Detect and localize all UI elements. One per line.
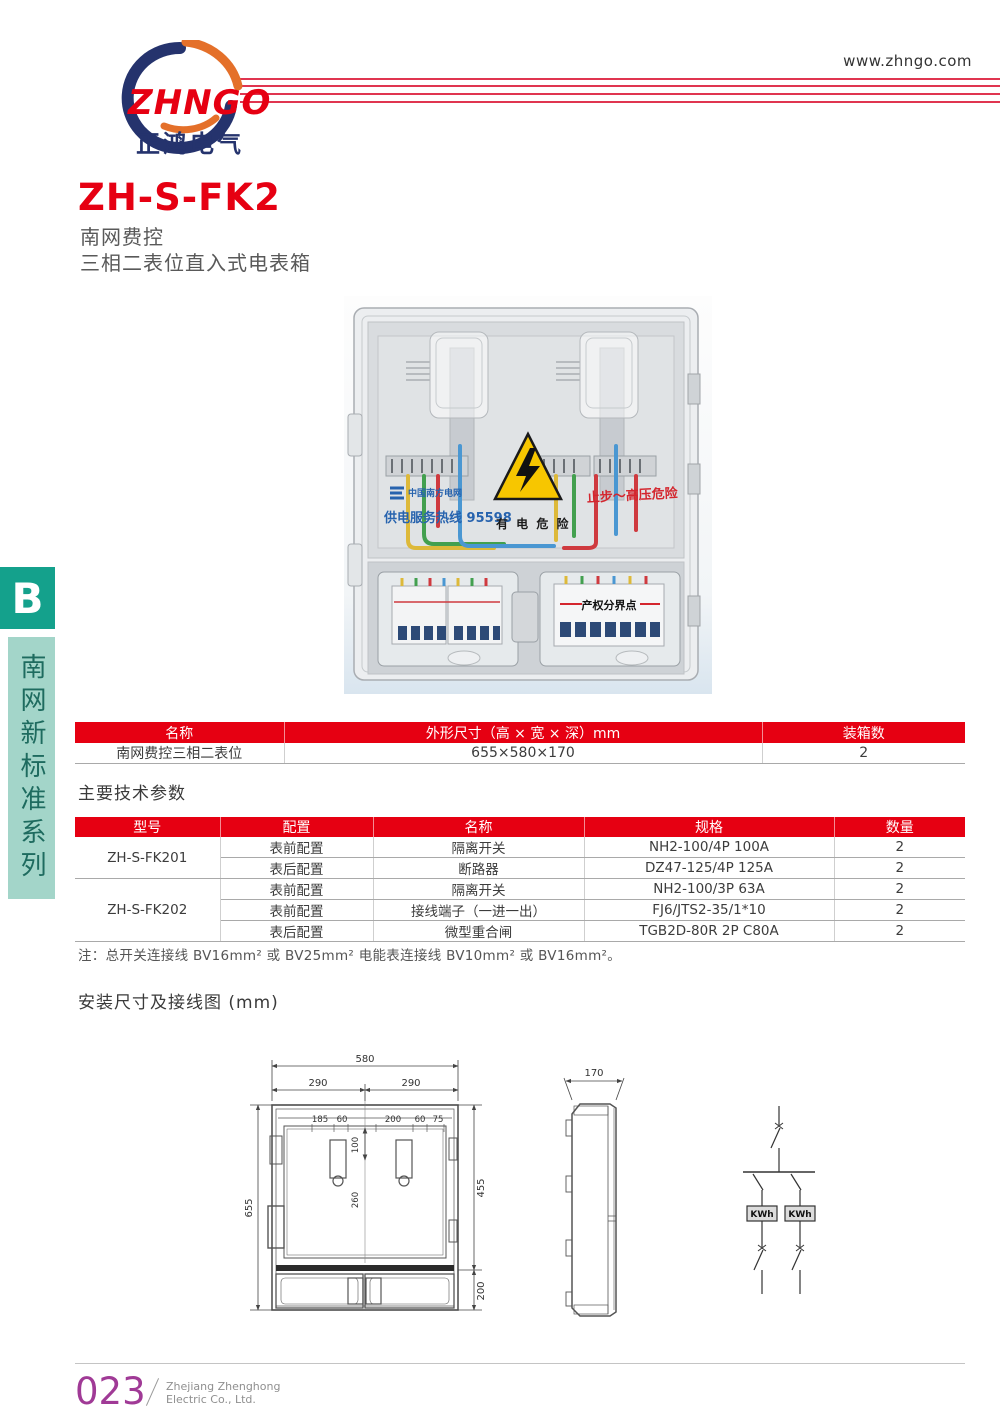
params-heading: 主要技术参数 bbox=[78, 779, 186, 804]
cell-spec: NH2-100/3P 63A bbox=[584, 879, 834, 900]
size-col-name: 名称 bbox=[75, 722, 284, 743]
params-col-model: 型号 bbox=[75, 817, 220, 837]
model-name: ZH-S-FK202 bbox=[75, 879, 220, 942]
subtitle-line1: 南网费控 bbox=[80, 221, 164, 250]
header-rule-3 bbox=[240, 93, 1000, 95]
cell-spec: FJ6/JTS2-35/1*10 bbox=[584, 900, 834, 921]
params-col-config: 配置 bbox=[220, 817, 373, 837]
product-qty: 2 bbox=[762, 743, 965, 764]
company-logo: ZHNGO 正鸿电气 bbox=[68, 40, 278, 165]
params-col-name: 名称 bbox=[373, 817, 584, 837]
hinge-icon bbox=[688, 464, 700, 494]
subtitle-line2: 三相二表位直入式电表箱 bbox=[80, 247, 311, 276]
company-name-line1: Zhejiang Zhenghong bbox=[166, 1380, 280, 1393]
header-rule-4 bbox=[240, 101, 1000, 103]
svg-text:100: 100 bbox=[351, 1137, 361, 1153]
install-heading: 安装尺寸及接线图 (mm) bbox=[78, 988, 279, 1013]
note-text: 注：总开关连接线 BV16mm² 或 BV25mm² 电能表连接线 BV10mm… bbox=[78, 944, 621, 964]
cell-config: 表前配置 bbox=[220, 900, 373, 921]
center-latch bbox=[512, 592, 538, 642]
cell-qty: 2 bbox=[834, 837, 965, 858]
svg-text:455: 455 bbox=[476, 1178, 487, 1197]
boundary-label: 产权分界点 bbox=[582, 598, 637, 612]
seal-boss-icon bbox=[616, 651, 648, 665]
svg-text:200: 200 bbox=[476, 1281, 487, 1300]
page-number: 023 bbox=[75, 1370, 146, 1413]
size-col-qty: 装箱数 bbox=[762, 722, 965, 743]
cell-item: 断路器 bbox=[373, 858, 584, 879]
size-table: 名称 外形尺寸（高 × 宽 × 深）mm 装箱数 南网费控三相二表位 655×5… bbox=[75, 722, 965, 764]
svg-text:290: 290 bbox=[401, 1078, 420, 1089]
grid-logo-text: 中国南方电网 bbox=[408, 487, 462, 499]
svg-text:260: 260 bbox=[351, 1192, 361, 1208]
grid-logo: 中国南方电网 bbox=[390, 487, 462, 499]
seal-boss-icon bbox=[448, 651, 480, 665]
product-name: 南网费控三相二表位 bbox=[75, 743, 284, 764]
cell-item: 微型重合闸 bbox=[373, 921, 584, 942]
sidebar-section-letter: B bbox=[0, 567, 55, 629]
company-name: Zhejiang Zhenghong Electric Co., Ltd. bbox=[166, 1380, 280, 1406]
cell-item: 接线端子（一进一出） bbox=[373, 900, 584, 921]
meter-symbol-label: KWh bbox=[750, 1210, 773, 1220]
table-row: 南网费控三相二表位 655×580×170 2 bbox=[75, 743, 965, 764]
hinge-icon bbox=[688, 374, 700, 404]
product-dimensions: 655×580×170 bbox=[284, 743, 762, 764]
params-table: 型号 配置 名称 规格 数量 ZH-S-FK201 表前配置 隔离开关 NH2-… bbox=[75, 817, 965, 942]
svg-text:200: 200 bbox=[385, 1115, 401, 1125]
table-row: ZH-S-FK202 表前配置 隔离开关 NH2-100/3P 63A 2 bbox=[75, 879, 965, 900]
product-photo: 中国南方电网 供电服务热线 95598 有 电 危 险 止步～高压危险 bbox=[344, 296, 712, 694]
sidebar-series-strip: 南网新标准系列 bbox=[8, 637, 55, 899]
cell-spec: DZ47-125/4P 125A bbox=[584, 858, 834, 879]
latch-icon bbox=[348, 544, 362, 586]
side-view bbox=[566, 1104, 616, 1316]
header-rule-2 bbox=[240, 85, 1000, 87]
latch-icon bbox=[348, 414, 362, 456]
cell-qty: 2 bbox=[834, 921, 965, 942]
cell-qty: 2 bbox=[834, 858, 965, 879]
svg-text:60: 60 bbox=[337, 1115, 348, 1125]
svg-text:655: 655 bbox=[244, 1198, 255, 1217]
page-title: ZH-S-FK2 bbox=[78, 176, 281, 219]
front-view bbox=[268, 1092, 458, 1310]
table-row: ZH-S-FK201 表前配置 隔离开关 NH2-100/4P 100A 2 bbox=[75, 837, 965, 858]
breaker-right-group: 产权分界点 bbox=[554, 576, 664, 646]
warning-text: 有 电 危 险 bbox=[496, 516, 571, 531]
header-rule-1 bbox=[240, 78, 1000, 80]
meter-hood-cover bbox=[430, 332, 488, 418]
side-dim-label: 170 bbox=[584, 1068, 603, 1079]
meter-symbol-label: KWh bbox=[788, 1210, 811, 1220]
size-col-dimensions: 外形尺寸（高 × 宽 × 深）mm bbox=[284, 722, 762, 743]
cell-config: 表后配置 bbox=[220, 858, 373, 879]
cell-qty: 2 bbox=[834, 879, 965, 900]
model-name: ZH-S-FK201 bbox=[75, 837, 220, 879]
circuit-diagram bbox=[743, 1106, 815, 1294]
svg-text:290: 290 bbox=[308, 1078, 327, 1089]
cell-qty: 2 bbox=[834, 900, 965, 921]
cell-item: 隔离开关 bbox=[373, 837, 584, 858]
hinge-icon bbox=[688, 596, 700, 626]
logo-wordmark: ZHNGO bbox=[127, 83, 271, 123]
cell-config: 表前配置 bbox=[220, 879, 373, 900]
params-col-qty: 数量 bbox=[834, 817, 965, 837]
hotline-text: 供电服务热线 95598 bbox=[383, 510, 512, 526]
website-url[interactable]: www.zhngo.com bbox=[843, 52, 972, 70]
svg-text:580: 580 bbox=[355, 1054, 374, 1065]
footer-slash-icon bbox=[146, 1378, 159, 1406]
cell-config: 表前配置 bbox=[220, 837, 373, 858]
cell-spec: NH2-100/4P 100A bbox=[584, 837, 834, 858]
front-dim-labels: 580 290 290 185 60 200 60 75 100 260 655… bbox=[244, 1054, 487, 1301]
cell-item: 隔离开关 bbox=[373, 879, 584, 900]
params-col-spec: 规格 bbox=[584, 817, 834, 837]
logo-cn-name: 正鸿电气 bbox=[136, 130, 244, 158]
meter-hood-cover bbox=[580, 332, 638, 418]
svg-text:60: 60 bbox=[415, 1115, 426, 1125]
cell-spec: TGB2D-80R 2P C80A bbox=[584, 921, 834, 942]
front-dimensions bbox=[250, 1060, 482, 1310]
svg-text:75: 75 bbox=[433, 1115, 444, 1125]
svg-text:185: 185 bbox=[312, 1115, 328, 1125]
side-dimensions bbox=[564, 1078, 624, 1100]
footer-divider bbox=[75, 1363, 965, 1364]
installation-drawing: 580 290 290 185 60 200 60 75 100 260 655… bbox=[230, 1048, 850, 1348]
cell-config: 表后配置 bbox=[220, 921, 373, 942]
logo-swoosh-orange-icon bbox=[186, 42, 238, 86]
sidebar-series-label: 南网新标准系列 bbox=[13, 653, 50, 884]
catalog-page: www.zhngo.com ZHNGO 正鸿电气 ZH-S-FK2 南网费控 三… bbox=[0, 0, 1000, 1425]
company-name-line2: Electric Co., Ltd. bbox=[166, 1393, 280, 1406]
